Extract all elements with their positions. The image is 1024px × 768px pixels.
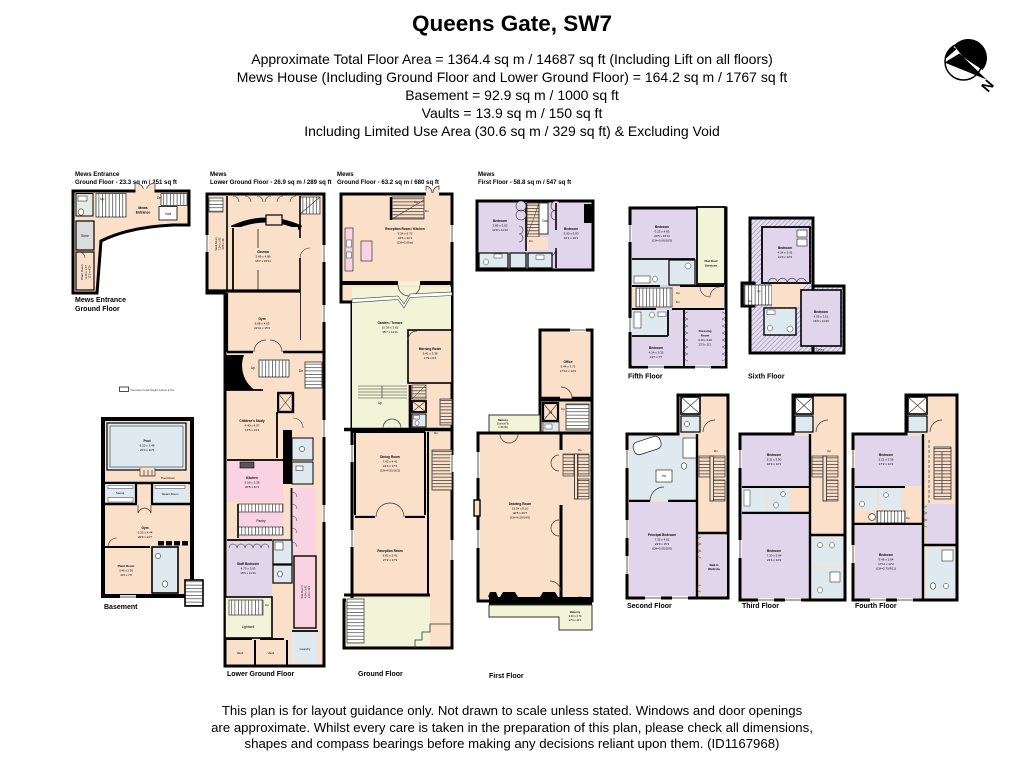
svg-text:3.23 x 3.74: 3.23 x 3.74 [569,614,582,618]
svg-text:7.24 x 1.42: 7.24 x 1.42 [218,237,222,250]
svg-text:6.68 x 4.65: 6.68 x 4.65 [255,322,270,326]
svg-text:Children's Study: Children's Study [239,419,264,423]
svg-text:Dn: Dn [299,369,303,373]
svg-text:Fourth Floor: Fourth Floor [855,603,897,610]
svg-text:Walk In: Walk In [710,563,719,567]
svg-text:5.00 x 5.00: 5.00 x 5.00 [564,232,579,236]
svg-text:20'5 x 15'11: 20'5 x 15'11 [654,234,670,238]
svg-text:Room: Room [701,334,710,338]
svg-text:Dn: Dn [676,300,680,304]
svg-text:Dn: Dn [425,209,429,213]
svg-text:Mews: Mews [337,171,354,178]
svg-text:First Floor - 58.8 sq m / 547: First Floor - 58.8 sq m / 547 sq ft [478,179,571,186]
svg-text:14'5 x 13'4: 14'5 x 13'4 [245,428,260,432]
svg-text:Wet Room: Wet Room [300,585,304,599]
svg-text:15'6 x 11'11: 15'6 x 11'11 [240,571,256,575]
svg-text:8.46 x 5.04: 8.46 x 5.04 [879,558,894,562]
svg-text:Third Floor: Third Floor [742,603,779,610]
svg-text:Bedroom: Bedroom [814,310,828,314]
svg-text:4.40 x 4.07: 4.40 x 4.07 [245,424,260,428]
svg-text:24'0 x 15'1: 24'0 x 15'1 [655,542,670,546]
svg-text:Up: Up [827,449,831,453]
svg-text:Bedroom: Bedroom [767,549,781,553]
svg-text:10.39 x 3.62: 10.39 x 3.62 [382,326,399,330]
svg-text:7.32 x 4.61: 7.32 x 4.61 [655,538,670,542]
svg-text:Vaults = 13.9 sq m / 150 sq ft: Vaults = 13.9 sq m / 150 sq ft [422,105,603,121]
svg-text:Bedroom: Bedroom [493,219,507,223]
svg-text:13'3 x 11'2: 13'3 x 11'2 [307,585,311,598]
svg-text:5.41 x 3.36: 5.41 x 3.36 [423,352,438,356]
svg-text:Pool: Pool [144,439,151,443]
svg-text:24'4 x 22'1: 24'4 x 22'1 [398,236,413,240]
svg-text:4.04 x 3.41: 4.04 x 3.41 [304,585,308,598]
svg-text:Up: Up [190,575,194,579]
svg-text:This plan is for layout guidan: This plan is for layout guidance only. N… [222,703,803,718]
svg-text:40'5 x 26'7: 40'5 x 26'7 [513,511,528,515]
svg-text:Morning Room: Morning Room [419,347,442,351]
svg-text:Up: Up [906,516,910,520]
svg-text:5.11 x 3.90: 5.11 x 3.90 [767,458,782,462]
svg-text:Laundry: Laundry [300,647,311,651]
svg-text:Queens Gate, SW7: Queens Gate, SW7 [412,11,612,36]
svg-text:Gym: Gym [258,317,265,321]
svg-text:5.21 x 3.36: 5.21 x 3.36 [879,458,894,462]
svg-text:Wardrobe: Wardrobe [708,567,721,571]
svg-text:Void: Void [542,219,548,223]
svg-text:Bedroom: Bedroom [778,246,792,250]
svg-text:Drawing Room: Drawing Room [509,502,532,506]
svg-text:12'8 x 11'10: 12'8 x 11'10 [492,228,508,232]
svg-text:Up: Up [251,366,255,370]
svg-text:Kitchen: Kitchen [246,476,258,480]
svg-text:17'2 x 12'4: 17'2 x 12'4 [879,462,894,466]
svg-text:Eaves: Eaves [816,348,824,352]
svg-text:27'9 x 12'4: 27'9 x 12'4 [569,618,582,622]
svg-text:27'2 x 17'9: 27'2 x 17'9 [383,558,398,562]
svg-text:Principal Bedroom: Principal Bedroom [648,533,677,537]
svg-text:4.73 x 3.63: 4.73 x 3.63 [241,567,256,571]
svg-text:20'9 x 14'7: 20'9 x 14'7 [138,535,153,539]
svg-text:Vault: Vault [268,651,275,655]
svg-text:Pool Room: Pool Room [161,476,176,480]
svg-text:16'3 x 11'10: 16'3 x 11'10 [813,319,829,323]
svg-text:Flat Roof: Flat Roof [705,259,718,263]
svg-text:Balcony: Balcony [570,610,581,614]
svg-text:Sixth Floor: Sixth Floor [748,374,785,381]
svg-text:Mews House (Including Ground F: Mews House (Including Ground Floor and L… [237,69,788,85]
svg-text:(CH=2.75/9'11): (CH=2.75/9'11) [876,567,896,571]
svg-text:Gym: Gym [141,526,148,530]
svg-text:20'4 x 11'5: 20'4 x 11'5 [140,448,154,452]
svg-text:3.85 x 3.62: 3.85 x 3.62 [493,224,508,228]
svg-text:6.23 x 4.85: 6.23 x 4.85 [655,230,670,234]
svg-text:45'7 x 11'11: 45'7 x 11'11 [382,330,398,334]
svg-text:Ground Floor: Ground Floor [358,671,403,678]
svg-text:11'2 x 4'10: 11'2 x 4'10 [88,265,92,279]
svg-text:Store: Store [81,234,89,238]
svg-text:Ground Floor: Ground Floor [75,306,120,313]
svg-text:Up: Up [757,289,761,293]
svg-text:Mews: Mews [478,171,495,178]
svg-text:4.55 x 3.61: 4.55 x 3.61 [814,315,829,319]
svg-text:Denotes head height below 1.5m: Denotes head height below 1.5m [131,388,175,392]
svg-text:Dn: Dn [157,196,161,200]
svg-text:Vault: Vault [237,651,244,655]
svg-text:23'9 x 4'8: 23'9 x 4'8 [221,238,225,249]
svg-text:Sand Room: Sand Room [214,237,218,251]
svg-text:shapes and compass bearings be: shapes and compass bearings before makin… [245,736,780,751]
svg-text:Bedroom: Bedroom [879,453,893,457]
svg-text:Bedroom: Bedroom [649,346,663,350]
svg-text:11'2 x 7'9: 11'2 x 7'9 [120,573,132,577]
svg-text:Office: Office [563,360,572,364]
svg-text:Mews: Mews [210,171,227,178]
svg-text:Staff Bedroom: Staff Bedroom [237,562,259,566]
svg-text:(CH=3.06m): (CH=3.06m) [397,241,413,245]
svg-text:6.33 x 4.44: 6.33 x 4.44 [138,531,153,535]
svg-text:Dn: Dn [578,448,582,452]
svg-text:5.66 x 4.86: 5.66 x 4.86 [256,255,271,259]
svg-text:Basement = 92.9 sq m / 1000 sq: Basement = 92.9 sq m / 1000 sq ft [405,87,619,103]
svg-text:13'3 x 11'1: 13'3 x 11'1 [698,343,712,347]
svg-text:Fifth Floor: Fifth Floor [628,374,663,381]
svg-text:6.82 x 5.41: 6.82 x 5.41 [383,554,398,558]
svg-text:17'11 x 12'2: 17'11 x 12'2 [878,562,894,566]
svg-text:9.24 x 6.72: 9.24 x 6.72 [398,232,413,236]
svg-text:4.10 x 3.40: 4.10 x 3.40 [698,338,712,342]
svg-text:Sauna: Sauna [116,491,125,495]
svg-text:24'4 x 17'3: 24'4 x 17'3 [383,464,398,468]
svg-text:1.38 (90): 1.38 (90) [498,426,508,429]
svg-text:Plant Room: Plant Room [118,564,135,568]
svg-text:Up: Up [265,603,269,607]
svg-text:Up: Up [561,407,565,411]
svg-text:Ground Floor - 63.2 sq m / 680: Ground Floor - 63.2 sq m / 680 sq ft [337,179,439,186]
svg-text:Garden / Terrace: Garden / Terrace [377,321,402,325]
svg-text:5.44 x 3.71: 5.44 x 3.71 [561,365,576,369]
svg-text:4.14 x 2.32: 4.14 x 2.32 [649,351,664,355]
svg-text:Up: Up [414,200,418,204]
svg-text:(CH=3.06/10'0): (CH=3.06/10'0) [652,239,672,243]
svg-text:Second Floor: Second Floor [627,603,672,610]
svg-text:6.20 x 3.48: 6.20 x 3.48 [140,444,155,448]
svg-text:Dn: Dn [529,239,533,243]
svg-text:6.16 x 3.38: 6.16 x 3.38 [245,481,260,485]
svg-text:Up: Up [676,291,680,295]
svg-text:16'9 x 12'1: 16'9 x 12'1 [767,462,782,466]
svg-text:N: N [979,77,998,95]
svg-text:16'1 x 16'1: 16'1 x 16'1 [564,236,579,240]
svg-text:Reception Room: Reception Room [377,549,402,553]
svg-text:(CH=4.51/16'2): (CH=4.51/16'2) [380,469,400,473]
svg-text:17'9 x 6'4: 17'9 x 6'4 [424,356,437,360]
svg-text:Pantry: Pantry [256,519,266,523]
svg-text:13'7 x 7'7: 13'7 x 7'7 [650,355,663,359]
svg-text:Bedroom: Bedroom [767,453,781,457]
svg-text:Ground Floor - 23.3 sq m / 251: Ground Floor - 23.3 sq m / 251 sq ft [75,179,177,186]
svg-text:Bedroom: Bedroom [564,227,578,231]
svg-text:are approximate. Whilst every: are approximate. Whilst every care is ta… [211,720,813,735]
svg-text:Lightwell: Lightwell [242,625,255,629]
svg-text:Reception Room / Kitchen: Reception Room / Kitchen [385,227,425,231]
svg-text:Up: Up [378,401,382,405]
svg-text:3.46 x 2.36: 3.46 x 2.36 [119,569,133,573]
svg-text:Lower Ground Floor - 26.9 sq m: Lower Ground Floor - 26.9 sq m / 289 sq … [210,179,332,186]
svg-text:Basement: Basement [104,604,138,611]
svg-text:Void: Void [165,212,172,216]
svg-text:Entrance: Entrance [136,211,151,215]
svg-text:14'3 x 12'4: 14'3 x 12'4 [778,255,793,259]
svg-text:(CH=4.28/14'0): (CH=4.28/14'0) [510,516,530,520]
svg-text:Including Limited Use Area (30: Including Limited Use Area (30.6 sq m / … [304,123,720,139]
svg-text:7.42 x 4.41: 7.42 x 4.41 [383,460,398,464]
svg-text:Up: Up [100,197,104,201]
svg-text:Bedroom: Bedroom [879,553,893,557]
svg-text:Services: Services [705,264,718,268]
svg-text:Mews: Mews [138,206,147,210]
svg-text:(CH=3.05/10'0): (CH=3.05/10'0) [652,547,672,551]
svg-text:Approximate Total Floor Area =: Approximate Total Floor Area = 1364.4 sq… [251,51,773,67]
svg-text:First Floor: First Floor [489,673,524,680]
svg-text:Dn: Dn [714,449,718,453]
svg-text:20'5 x 11'1: 20'5 x 11'1 [245,485,259,489]
svg-text:4.04 x 3.01: 4.04 x 3.01 [778,251,793,255]
svg-text:21'11 x 15'3: 21'11 x 15'3 [254,326,270,330]
svg-text:Dining Room: Dining Room [380,455,400,459]
svg-text:Mews Entrance: Mews Entrance [75,297,126,304]
svg-text:Dn: Dn [434,431,438,435]
svg-text:Lift: Lift [549,411,553,415]
svg-text:Mews Entrance: Mews Entrance [75,171,120,178]
svg-text:13.54 x 8.10: 13.54 x 8.10 [512,507,529,511]
svg-text:Lower Ground Floor: Lower Ground Floor [227,671,295,678]
svg-text:17'10 x 12'2: 17'10 x 12'2 [560,369,576,373]
svg-text:Cinema: Cinema [257,250,269,254]
svg-text:Dn: Dn [748,299,752,303]
svg-text:Bedroom: Bedroom [655,225,669,229]
svg-text:Steam Room: Steam Room [162,492,179,496]
svg-text:18'7 x 15'11: 18'7 x 15'11 [255,259,271,263]
svg-text:Dressing: Dressing [699,329,712,333]
svg-text:7.30 x 5.04: 7.30 x 5.04 [767,554,782,558]
svg-text:24'4 x 12'2: 24'4 x 12'2 [767,558,782,562]
